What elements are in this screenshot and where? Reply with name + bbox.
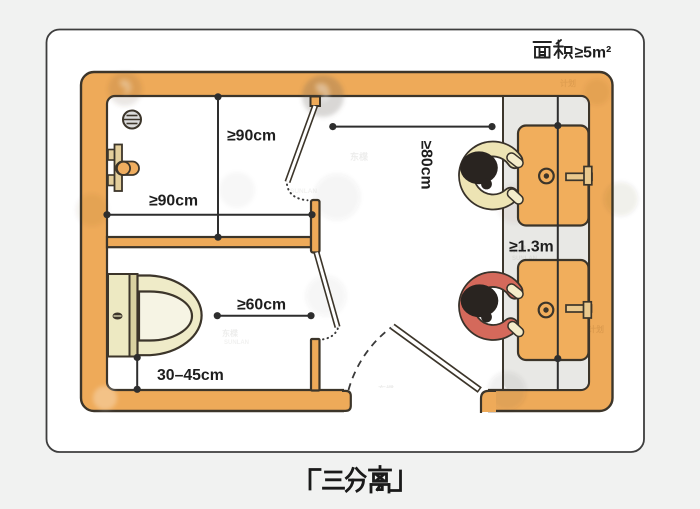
svg-text:SUNLAN: SUNLAN bbox=[290, 188, 317, 195]
svg-text:计划: 计划 bbox=[560, 78, 576, 88]
svg-text:东楪: 东楪 bbox=[222, 328, 239, 338]
svg-text:计划: 计划 bbox=[588, 324, 604, 334]
svg-text:≥1.3m: ≥1.3m bbox=[509, 239, 554, 256]
svg-text:≥90cm: ≥90cm bbox=[227, 128, 276, 145]
svg-text:SUNLAN: SUNLAN bbox=[224, 340, 249, 346]
svg-text:≥90cm: ≥90cm bbox=[149, 193, 198, 210]
svg-text:东楪: 东楪 bbox=[350, 151, 369, 162]
svg-text:30–45cm: 30–45cm bbox=[157, 367, 224, 384]
svg-text:≥80cm: ≥80cm bbox=[418, 140, 435, 189]
svg-text:≥5m²: ≥5m² bbox=[575, 45, 612, 62]
svg-text:≥60cm: ≥60cm bbox=[237, 297, 286, 314]
